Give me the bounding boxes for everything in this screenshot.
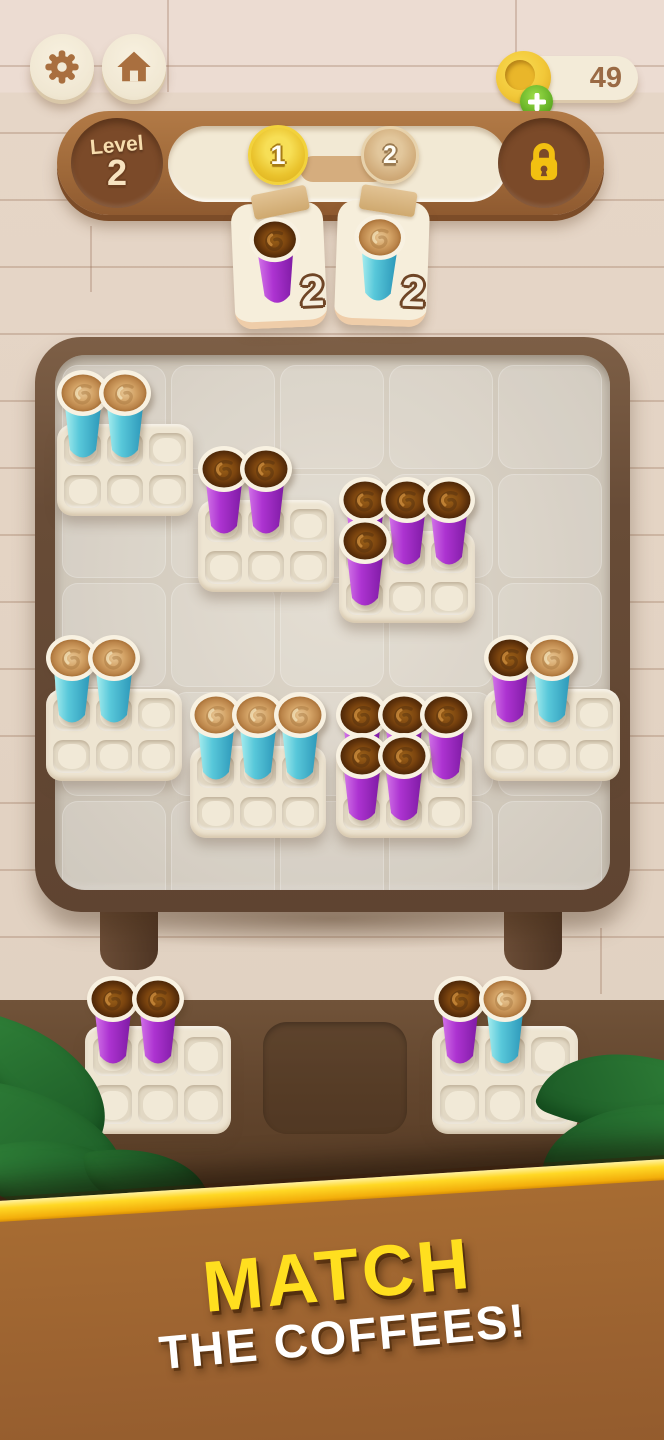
game-screen: MATCH THE COFFEES!: [0, 0, 664, 1440]
goal-card-purple-coffee: 2: [230, 201, 327, 330]
board-tile: [62, 801, 166, 890]
board-tile: [498, 365, 602, 469]
promo-banner: MATCH THE COFFEES!: [0, 1156, 664, 1440]
board-tile: [389, 583, 493, 687]
board-tile: [62, 474, 166, 578]
home-icon: [115, 48, 153, 86]
wood-seam: [167, 0, 169, 92]
coin-value: 49: [590, 56, 622, 100]
lock-icon: [523, 140, 565, 186]
board-tile: [498, 474, 602, 578]
purple-coffee-cup[interactable]: [377, 731, 431, 829]
goal-cup-purple: [244, 214, 308, 318]
teal-latte-cup[interactable]: [87, 633, 141, 731]
teal-latte-cup[interactable]: [98, 368, 152, 466]
goal-count: 2: [401, 268, 426, 317]
coin-counter: 49: [512, 56, 638, 100]
settings-button[interactable]: [30, 34, 94, 100]
board-tile: [389, 365, 493, 469]
board-tile: [498, 801, 602, 890]
level-label: Level: [89, 134, 144, 159]
board-tile: [171, 583, 275, 687]
board-tile: [280, 365, 384, 469]
goal-card-teal-latte: 2: [334, 199, 430, 327]
wood-seam: [90, 226, 92, 292]
home-button[interactable]: [102, 34, 166, 100]
level-number: 2: [107, 156, 127, 190]
board-tile: [171, 801, 275, 890]
teal-latte-cup[interactable]: [525, 633, 579, 731]
locked-reward-button[interactable]: [498, 118, 590, 208]
plus-icon: [528, 93, 546, 111]
gear-icon: [43, 48, 81, 86]
purple-coffee-cup[interactable]: [239, 444, 293, 542]
level-progress-track: 1 2: [168, 126, 508, 202]
level-badge: Level 2: [71, 118, 163, 208]
purple-coffee-cup[interactable]: [338, 516, 392, 614]
teal-latte-cup[interactable]: [273, 690, 327, 788]
purple-coffee-cup[interactable]: [131, 974, 185, 1072]
level-banner: Level 2 1 2: [57, 111, 604, 215]
goal-count: 2: [300, 267, 325, 316]
teal-latte-cup[interactable]: [478, 974, 532, 1072]
purple-coffee-cup[interactable]: [422, 475, 476, 573]
milestone-1: 1: [248, 125, 308, 185]
milestone-2: 2: [361, 126, 419, 184]
empty-tray-slot: [263, 1022, 407, 1134]
